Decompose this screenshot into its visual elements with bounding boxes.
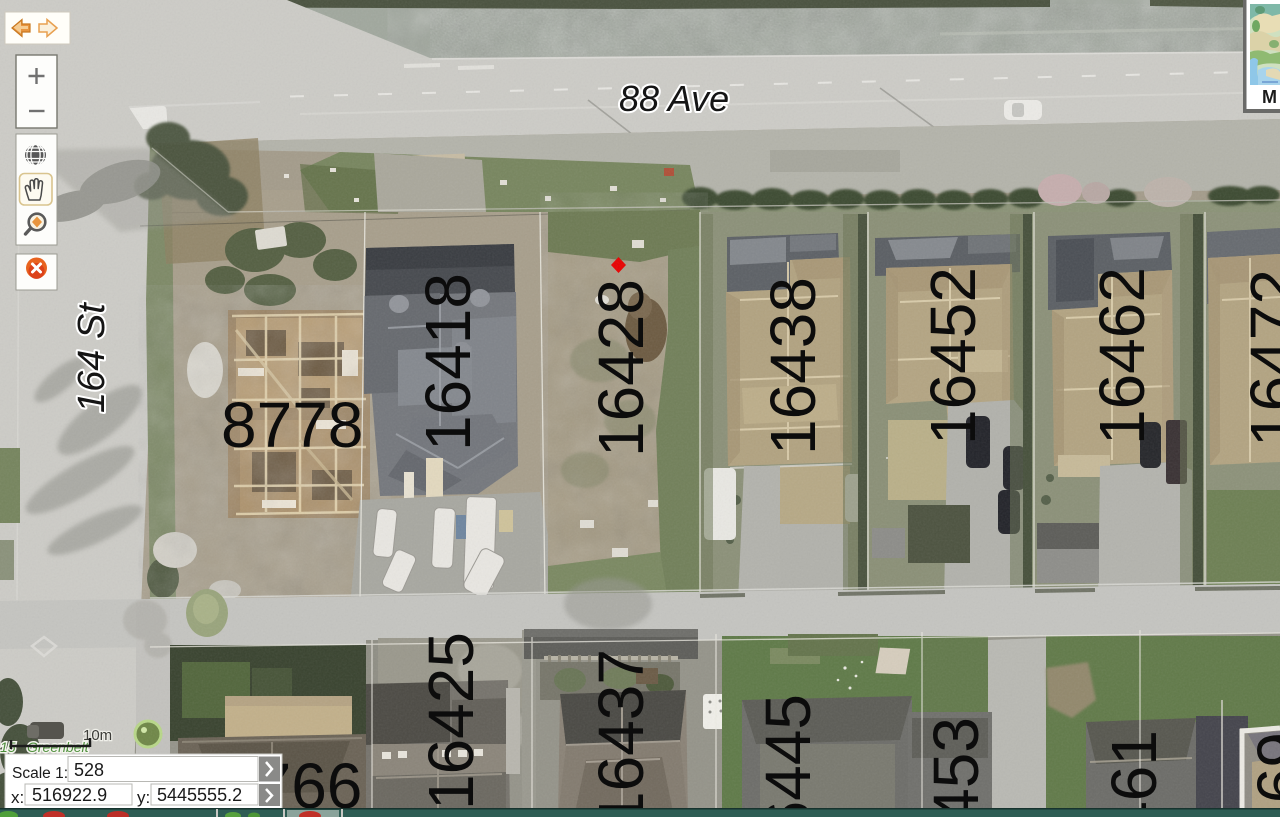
svg-text:5445555.2: 5445555.2 [157,785,242,805]
svg-text:528: 528 [74,760,104,780]
svg-text:x:: x: [11,788,24,807]
svg-text:516922.9: 516922.9 [32,785,107,805]
svg-text:Scale 1:: Scale 1: [12,765,68,782]
svg-text:M: M [1262,87,1277,107]
svg-text:y:: y: [137,788,150,807]
